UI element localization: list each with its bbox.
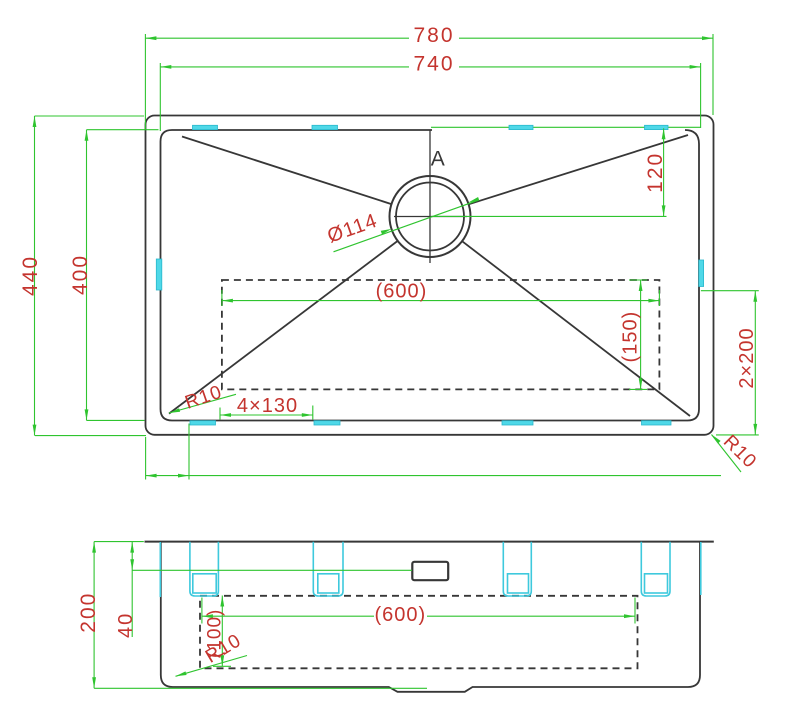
svg-text:(600): (600)	[376, 281, 428, 303]
svg-text:440: 440	[19, 255, 42, 296]
svg-text:780: 780	[413, 24, 454, 47]
svg-text:740: 740	[413, 53, 454, 76]
svg-text:200: 200	[77, 592, 100, 633]
svg-text:40: 40	[115, 612, 137, 638]
svg-text:120: 120	[644, 152, 667, 193]
svg-text:A: A	[431, 148, 445, 171]
svg-text:2×200: 2×200	[736, 327, 758, 388]
svg-text:4×130: 4×130	[237, 395, 298, 417]
svg-text:(150): (150)	[620, 311, 642, 363]
svg-text:400: 400	[69, 254, 92, 295]
svg-text:(600): (600)	[374, 604, 426, 626]
